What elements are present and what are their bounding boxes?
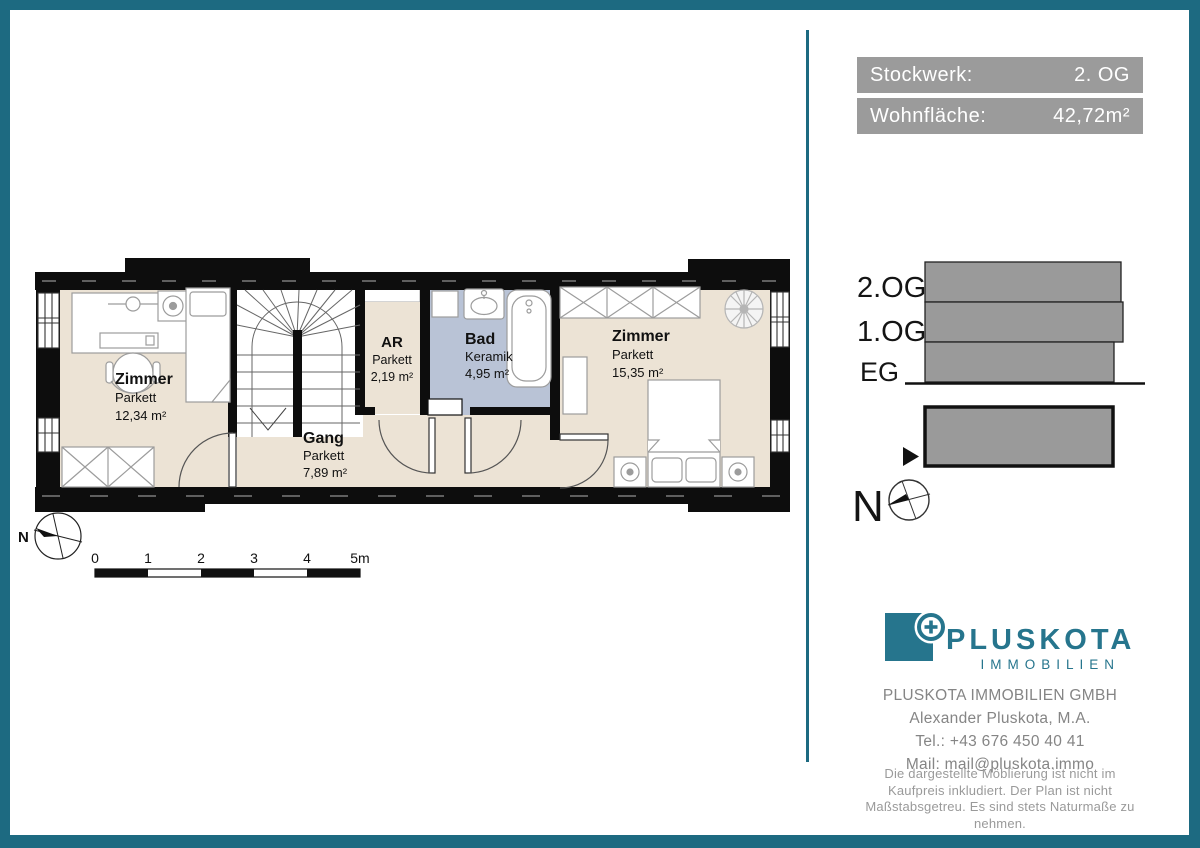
label-gang: Gang Parkett 7,89 m²	[303, 430, 348, 480]
wohnflaeche-label: Wohnfläche:	[870, 105, 986, 128]
bathtub-icon	[507, 290, 551, 387]
room-name: Gang	[303, 430, 344, 447]
floor-label-2og: 2.OG	[857, 272, 926, 304]
room-name: Bad	[465, 331, 495, 348]
window-left-bottom	[38, 418, 59, 452]
wohnflaeche-value: 42,72m²	[1053, 105, 1130, 128]
floor-label-1og: 1.OG	[857, 316, 926, 348]
window-right-bottom	[771, 420, 789, 452]
wohnflaeche-bar: Wohnfläche: 42,72m²	[857, 98, 1143, 134]
room-floor-type: Parkett	[303, 448, 345, 463]
nightstand-left	[614, 457, 646, 487]
contact-block: PLUSKOTA IMMOBILIEN GMBH Alexander Plusk…	[810, 684, 1190, 776]
bad-niche	[428, 399, 462, 415]
floor-label-eg: EG	[860, 357, 899, 387]
plant-icon	[725, 290, 763, 328]
room-floor-type: Parkett	[612, 347, 654, 362]
stockwerk-value: 2. OG	[1074, 64, 1130, 87]
washbasin-icon	[464, 289, 504, 319]
section-compass-icon: N	[852, 480, 930, 531]
logo-brand-text: PLUSKOTA	[946, 624, 1135, 656]
room-area: 7,89 m²	[303, 465, 348, 480]
north-label: N	[852, 482, 884, 531]
window-left-top	[38, 293, 59, 348]
double-bed	[648, 380, 720, 487]
appliance-icon	[158, 291, 188, 321]
scale-tick: 0	[91, 550, 99, 566]
shelf	[563, 357, 587, 414]
room-floor-type: Parkett	[372, 353, 412, 367]
section-box-2og	[925, 262, 1121, 302]
site-plan-box	[925, 407, 1113, 466]
page-canvas: Zimmer Parkett 12,34 m² Gang Parkett 7,8…	[0, 0, 1200, 848]
stockwerk-label: Stockwerk:	[870, 64, 973, 87]
single-bed	[186, 288, 230, 402]
scale-tick: 1	[144, 550, 152, 566]
room-area: 12,34 m²	[115, 408, 167, 423]
scale-tick: 3	[250, 550, 258, 566]
room-floor-type: Parkett	[115, 390, 157, 405]
section-box-eg	[925, 342, 1114, 382]
plan-compass-icon: N	[18, 513, 82, 559]
wardrobe	[62, 447, 154, 487]
wardrobe	[560, 287, 700, 318]
room-name: Zimmer	[612, 328, 670, 345]
scale-bar: 0 1 2 3 4 5m	[91, 550, 370, 577]
scale-tick: 4	[303, 550, 311, 566]
disclaimer-text: Die dargestellte Möblierung ist nicht im…	[862, 766, 1138, 832]
stockwerk-bar: Stockwerk: 2. OG	[857, 57, 1143, 93]
vertical-divider	[806, 30, 809, 762]
room-area: 2,19 m²	[371, 370, 413, 384]
room-area: 15,35 m²	[612, 365, 664, 380]
ar-niche	[363, 288, 420, 302]
contact-person: Alexander Pluskota, M.A.	[810, 707, 1190, 730]
stair-newel	[293, 330, 302, 437]
contact-phone: Tel.: +43 676 450 40 41	[810, 730, 1190, 753]
logo-subtitle-text: IMMOBILIEN	[980, 657, 1120, 672]
scale-tick: 2	[197, 550, 205, 566]
orientation-arrow-icon	[903, 447, 919, 466]
company-logo: PLUSKOTA IMMOBILIEN	[885, 611, 1135, 673]
nightstand-right	[722, 457, 754, 487]
keyboard-icon	[100, 333, 158, 348]
north-label: N	[18, 529, 29, 546]
disclaimer: Die dargestellte Möblierung ist nicht im…	[810, 766, 1190, 833]
scale-tick: 5m	[350, 550, 369, 566]
bath-cabinet	[432, 291, 458, 317]
contact-company: PLUSKOTA IMMOBILIEN GMBH	[810, 684, 1190, 707]
room-name: Zimmer	[115, 371, 173, 388]
room-area: 4,95 m²	[465, 366, 510, 381]
room-name: AR	[381, 334, 403, 351]
room-floor-type: Keramik	[465, 349, 513, 364]
section-box-1og	[925, 302, 1123, 342]
logo-mark-icon	[885, 611, 948, 662]
building-section-diagram: 2.OG 1.OG EG N	[852, 262, 1145, 531]
window-right-top	[771, 292, 789, 347]
